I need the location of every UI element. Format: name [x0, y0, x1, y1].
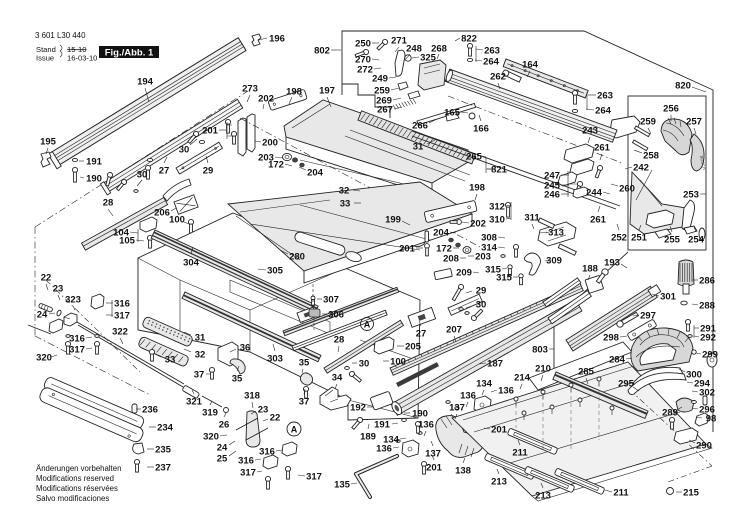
svg-text:234: 234 [157, 422, 174, 433]
svg-text:243: 243 [582, 125, 598, 136]
svg-text:Änderungen vorbehalten: Änderungen vorbehalten [36, 464, 121, 473]
svg-text:820: 820 [675, 80, 691, 91]
svg-text:263: 263 [597, 90, 613, 101]
svg-text:289: 289 [662, 407, 678, 418]
svg-text:190: 190 [86, 173, 102, 184]
svg-text:201: 201 [426, 462, 443, 473]
svg-text:316: 316 [238, 455, 254, 466]
svg-text:188: 188 [582, 263, 598, 274]
svg-text:209: 209 [456, 267, 472, 278]
svg-text:208: 208 [443, 253, 459, 264]
svg-text:30: 30 [137, 169, 148, 180]
svg-text:317: 317 [114, 310, 130, 321]
svg-text:135: 135 [334, 479, 351, 490]
svg-text:252: 252 [611, 232, 627, 243]
svg-text:803: 803 [532, 344, 548, 355]
svg-text:187: 187 [487, 358, 503, 369]
svg-text:299: 299 [702, 349, 718, 360]
svg-text:198: 198 [469, 182, 485, 193]
svg-text:325: 325 [420, 52, 437, 63]
svg-text:295: 295 [618, 378, 635, 389]
svg-text:22: 22 [41, 272, 52, 283]
svg-text:22: 22 [270, 412, 281, 423]
svg-text:Issue: Issue [36, 54, 54, 63]
svg-text:210: 210 [535, 363, 551, 374]
svg-text:Modifications reserved: Modifications reserved [36, 474, 114, 483]
svg-text:261: 261 [590, 214, 607, 225]
svg-text:303: 303 [267, 353, 283, 364]
svg-text:307: 307 [323, 294, 339, 305]
svg-text:316: 316 [114, 298, 130, 309]
svg-text:31: 31 [413, 141, 424, 152]
svg-text:284: 284 [609, 354, 626, 365]
svg-text:259: 259 [640, 116, 656, 127]
svg-text:138: 138 [455, 465, 471, 476]
svg-text:24: 24 [37, 309, 48, 320]
svg-text:A: A [364, 320, 371, 330]
svg-text:267: 267 [377, 104, 393, 115]
svg-text:37: 37 [299, 396, 310, 407]
svg-text:197: 197 [319, 85, 335, 96]
svg-text:214: 214 [514, 372, 531, 383]
svg-text:237: 237 [155, 462, 171, 473]
svg-text:305: 305 [267, 265, 284, 276]
svg-text:190: 190 [412, 408, 428, 419]
svg-text:23: 23 [258, 404, 269, 415]
svg-text:A: A [291, 425, 298, 435]
svg-text:196: 196 [269, 33, 285, 44]
svg-text:136: 136 [418, 419, 434, 430]
svg-text:235: 235 [155, 444, 172, 455]
svg-text:310: 310 [489, 214, 505, 225]
svg-text:211: 211 [613, 487, 629, 498]
svg-text:32: 32 [339, 185, 350, 196]
svg-text:285: 285 [578, 366, 595, 377]
svg-text:33: 33 [340, 198, 351, 209]
svg-text:164: 164 [522, 59, 539, 70]
svg-text:246: 246 [544, 189, 560, 200]
svg-text:100: 100 [169, 214, 185, 225]
svg-text:203: 203 [475, 251, 491, 262]
svg-text:244: 244 [586, 187, 603, 198]
svg-text:189: 189 [360, 431, 376, 442]
svg-text:256: 256 [663, 103, 679, 114]
svg-text:249: 249 [372, 73, 388, 84]
svg-text:37: 37 [194, 369, 205, 380]
svg-text:28: 28 [334, 334, 345, 345]
svg-text:250: 250 [355, 38, 371, 49]
svg-text:205: 205 [405, 341, 422, 352]
svg-text:316: 316 [69, 333, 85, 344]
svg-text:31: 31 [195, 332, 206, 343]
svg-text:264: 264 [595, 105, 612, 116]
svg-text:29: 29 [203, 165, 214, 176]
svg-text:322: 322 [112, 326, 128, 337]
svg-text:261: 261 [594, 142, 611, 153]
svg-text:301: 301 [660, 291, 677, 302]
svg-text:29: 29 [476, 285, 487, 296]
svg-text:25: 25 [217, 453, 228, 464]
svg-text:Salvo modificaciones: Salvo modificaciones [36, 494, 109, 503]
svg-text:192: 192 [350, 402, 366, 413]
svg-text:36: 36 [240, 342, 251, 353]
svg-text:35: 35 [232, 373, 243, 384]
svg-text:323: 323 [65, 294, 81, 305]
svg-text:165: 165 [444, 107, 461, 118]
svg-text:253: 253 [683, 189, 699, 200]
svg-text:195: 195 [40, 136, 57, 147]
svg-text:213: 213 [535, 490, 551, 501]
svg-text:318: 318 [244, 390, 260, 401]
svg-text:27: 27 [159, 165, 170, 176]
svg-text:258: 258 [643, 150, 659, 161]
svg-text:312: 312 [489, 201, 505, 212]
svg-text:193: 193 [604, 257, 620, 268]
svg-text:98: 98 [706, 413, 717, 424]
svg-text:297: 297 [640, 310, 656, 321]
svg-text:315: 315 [496, 272, 513, 283]
svg-text:27: 27 [416, 328, 427, 339]
svg-text:201: 201 [399, 243, 416, 254]
svg-text:201: 201 [491, 424, 508, 435]
svg-text:30: 30 [179, 144, 190, 155]
svg-text:265: 265 [466, 151, 483, 162]
svg-text:313: 313 [548, 227, 564, 238]
svg-text:242: 242 [633, 162, 649, 173]
svg-text:172: 172 [268, 159, 284, 170]
svg-text:286: 286 [699, 275, 715, 286]
svg-text:204: 204 [307, 167, 324, 178]
svg-text:292: 292 [700, 332, 716, 343]
svg-text:302: 302 [699, 387, 715, 398]
svg-text:207: 207 [446, 324, 462, 335]
svg-text:202: 202 [258, 93, 274, 104]
svg-text:202: 202 [470, 218, 486, 229]
svg-text:201: 201 [202, 125, 219, 136]
svg-text:213: 213 [491, 476, 507, 487]
svg-text:134: 134 [476, 378, 493, 389]
svg-text:200: 200 [262, 137, 278, 148]
svg-text:191: 191 [86, 156, 103, 167]
svg-text:290: 290 [696, 440, 712, 451]
svg-text:319: 319 [202, 407, 218, 418]
svg-text:280: 280 [289, 251, 305, 262]
svg-text:198: 198 [286, 86, 302, 97]
svg-text:317: 317 [240, 467, 256, 478]
svg-text:802: 802 [314, 45, 330, 56]
svg-text:306: 306 [328, 309, 344, 320]
svg-text:320: 320 [203, 431, 219, 442]
svg-text:311: 311 [524, 212, 540, 223]
svg-text:255: 255 [664, 234, 681, 245]
svg-text:100: 100 [390, 356, 406, 367]
svg-text:215: 215 [683, 487, 700, 498]
svg-text:264: 264 [483, 56, 500, 67]
svg-text:Modifications réservées: Modifications réservées [36, 484, 118, 493]
svg-text:257: 257 [686, 116, 702, 127]
svg-text:26: 26 [219, 419, 230, 430]
svg-text:211: 211 [512, 447, 528, 458]
svg-text:137: 137 [449, 402, 465, 413]
svg-text:35: 35 [299, 357, 310, 368]
svg-text:317: 317 [306, 471, 322, 482]
svg-text:16-03-10: 16-03-10 [67, 54, 97, 63]
svg-text:320: 320 [36, 352, 52, 363]
svg-text:136: 136 [376, 443, 392, 454]
svg-text:30: 30 [359, 358, 370, 369]
svg-text:272: 272 [357, 64, 373, 75]
svg-text:316: 316 [259, 446, 275, 457]
svg-text:3 601 L30 440: 3 601 L30 440 [35, 31, 86, 40]
svg-text:821: 821 [491, 164, 508, 175]
svg-text:33: 33 [165, 354, 176, 365]
svg-text:24: 24 [217, 442, 228, 453]
svg-text:236: 236 [142, 404, 158, 415]
svg-text:262: 262 [490, 71, 506, 82]
svg-text:317: 317 [69, 344, 85, 355]
svg-text:321: 321 [186, 396, 203, 407]
svg-text:199: 199 [385, 214, 401, 225]
svg-text:34: 34 [332, 372, 343, 383]
svg-text:260: 260 [619, 183, 635, 194]
svg-text:28: 28 [103, 197, 114, 208]
svg-text:822: 822 [461, 33, 477, 44]
svg-text:136: 136 [460, 390, 476, 401]
svg-text:166: 166 [473, 123, 489, 134]
svg-text:304: 304 [183, 257, 200, 268]
svg-text:288: 288 [699, 300, 715, 311]
svg-text:263: 263 [484, 45, 500, 56]
svg-text:23: 23 [53, 283, 64, 294]
svg-text:194: 194 [137, 76, 154, 87]
svg-text:298: 298 [603, 332, 619, 343]
svg-text:105: 105 [119, 235, 136, 246]
svg-text:136: 136 [498, 385, 514, 396]
svg-text:273: 273 [242, 83, 258, 94]
svg-text:204: 204 [433, 227, 450, 238]
svg-text:Fig./Abb. 1: Fig./Abb. 1 [105, 48, 154, 59]
svg-text:191: 191 [374, 419, 391, 430]
svg-text:266: 266 [412, 120, 428, 131]
svg-text:32: 32 [195, 349, 206, 360]
svg-text:254: 254 [688, 234, 705, 245]
svg-text:30: 30 [476, 299, 487, 310]
svg-text:251: 251 [631, 232, 648, 243]
svg-text:309: 309 [546, 255, 562, 266]
svg-text:206: 206 [154, 207, 170, 218]
